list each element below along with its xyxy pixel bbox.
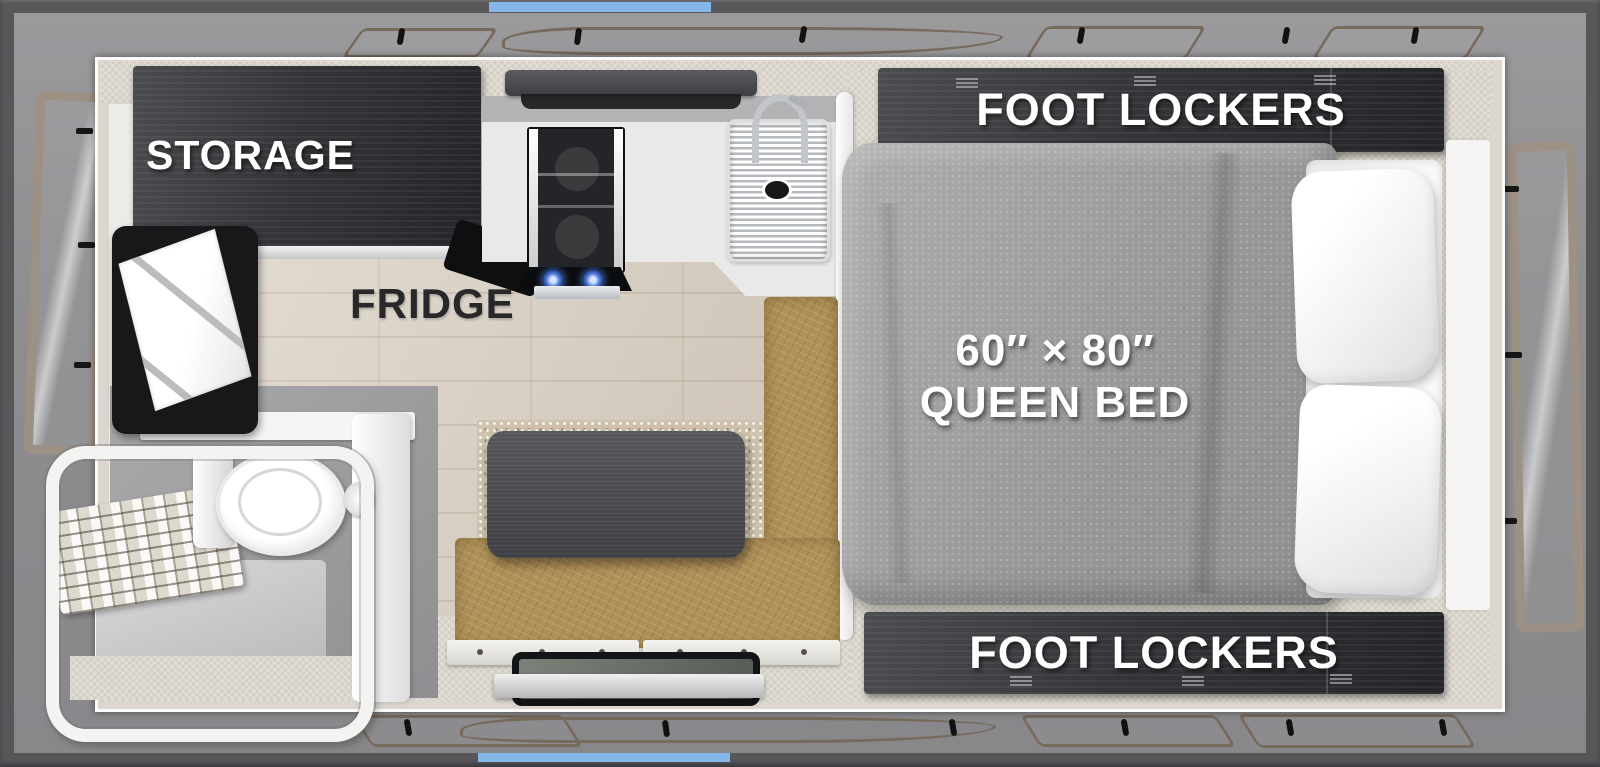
fridge-fan (555, 147, 599, 191)
fridge-rail-left (529, 129, 538, 271)
side-door-outline-right (1508, 141, 1585, 632)
fastener-dot (477, 649, 483, 655)
door-latch (1505, 352, 1522, 358)
roof-accent-top (489, 2, 711, 12)
fastener-dot (801, 649, 807, 655)
door-latch (76, 128, 93, 134)
foot-locker-cabinet-top: FOOT LOCKERS (878, 68, 1444, 152)
overhead-cabinet (505, 70, 757, 96)
bed-labels: 60″ × 80″ QUEEN BED (850, 325, 1260, 429)
door-latch (78, 242, 95, 248)
pillow-top (1290, 168, 1439, 385)
foot-locker-cabinet-bottom: FOOT LOCKERS (864, 612, 1444, 694)
vent-icon (956, 76, 978, 88)
fridge-fan (555, 215, 599, 259)
vent-icon (1330, 672, 1352, 684)
bed-size-label: 60″ × 80″ (850, 325, 1260, 377)
pillow-bottom (1293, 384, 1442, 597)
cooktop-tray (534, 286, 620, 299)
storage-label: STORAGE (146, 132, 355, 179)
canvas-fold-outline (460, 717, 996, 743)
canvas-fold-outline (341, 28, 498, 58)
vent-icon (1134, 74, 1156, 86)
cabinet-seam (1326, 612, 1328, 694)
foot-lockers-bottom-label: FOOT LOCKERS (969, 627, 1339, 679)
fridge-unit (527, 127, 625, 273)
fridge-label: FRIDGE (350, 280, 515, 328)
door-latch (74, 362, 91, 368)
fridge-shelf (538, 205, 614, 208)
bed-type-label: QUEEN BED (850, 377, 1260, 429)
vent-icon (1182, 674, 1204, 686)
foot-lockers-top-label: FOOT LOCKERS (976, 84, 1346, 136)
overhead-cabinet-shadow (521, 94, 741, 109)
fridge-rail-right (614, 129, 623, 271)
tv-swivel (112, 226, 258, 434)
shower-enclosure-frame (46, 446, 374, 742)
sink-drain (762, 178, 792, 202)
bed-side-wall (1446, 140, 1490, 610)
canvas-fold-outline (1311, 26, 1486, 60)
camper-floorplan: STORAGE FRIDGE (0, 0, 1600, 767)
vent-icon (1314, 73, 1336, 85)
tv-bracket (118, 229, 251, 412)
vent-icon (1010, 674, 1032, 686)
entry-step-tread (494, 674, 764, 698)
canvas-fold-outline (1024, 26, 1206, 60)
dinette-table (487, 431, 745, 558)
tv-screen (118, 229, 251, 412)
